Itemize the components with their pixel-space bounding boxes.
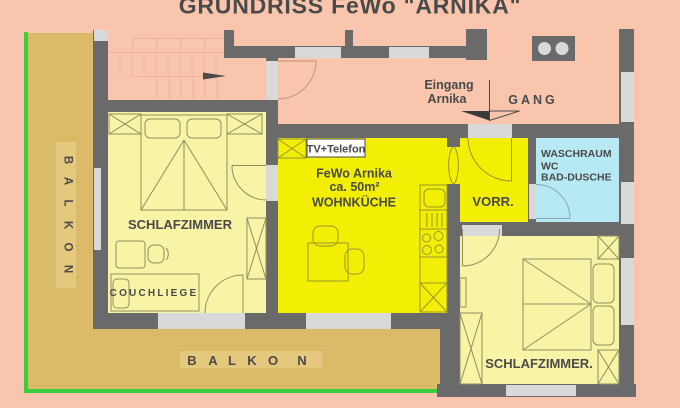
svg-text:GRUNDRISS FeWo "ARNIKA": GRUNDRISS FeWo "ARNIKA" [179, 0, 522, 19]
svg-text:TV+Telefon: TV+Telefon [307, 144, 366, 156]
svg-text:N: N [297, 353, 306, 368]
svg-text:K: K [62, 221, 74, 230]
svg-text:A: A [62, 177, 74, 185]
svg-text:O: O [62, 243, 74, 252]
svg-text:B: B [62, 156, 74, 164]
svg-text:SCHLAFZIMMER: SCHLAFZIMMER [128, 217, 233, 232]
svg-text:WASCHRAUM: WASCHRAUM [541, 148, 612, 160]
svg-text:SCHLAFZIMMER.: SCHLAFZIMMER. [485, 356, 593, 371]
svg-text:Arnika: Arnika [428, 92, 468, 106]
svg-text:WOHNKÜCHE: WOHNKÜCHE [312, 195, 396, 210]
svg-text:Eingang: Eingang [424, 78, 473, 92]
svg-text:L: L [228, 353, 236, 368]
svg-text:COUCHLIEGE: COUCHLIEGE [110, 288, 199, 299]
svg-text:K: K [247, 353, 257, 368]
svg-text:BAD-DUSCHE: BAD-DUSCHE [541, 172, 612, 184]
svg-text:VORR.: VORR. [472, 194, 513, 209]
svg-text:ca. 50m²: ca. 50m² [329, 180, 379, 194]
svg-text:FeWo Arnika: FeWo Arnika [316, 167, 393, 181]
svg-text:A: A [208, 353, 218, 368]
svg-text:B: B [187, 353, 196, 368]
svg-text:O: O [268, 353, 278, 368]
svg-text:GANG: GANG [508, 93, 558, 107]
svg-text:L: L [62, 199, 74, 206]
svg-text:N: N [62, 265, 74, 273]
